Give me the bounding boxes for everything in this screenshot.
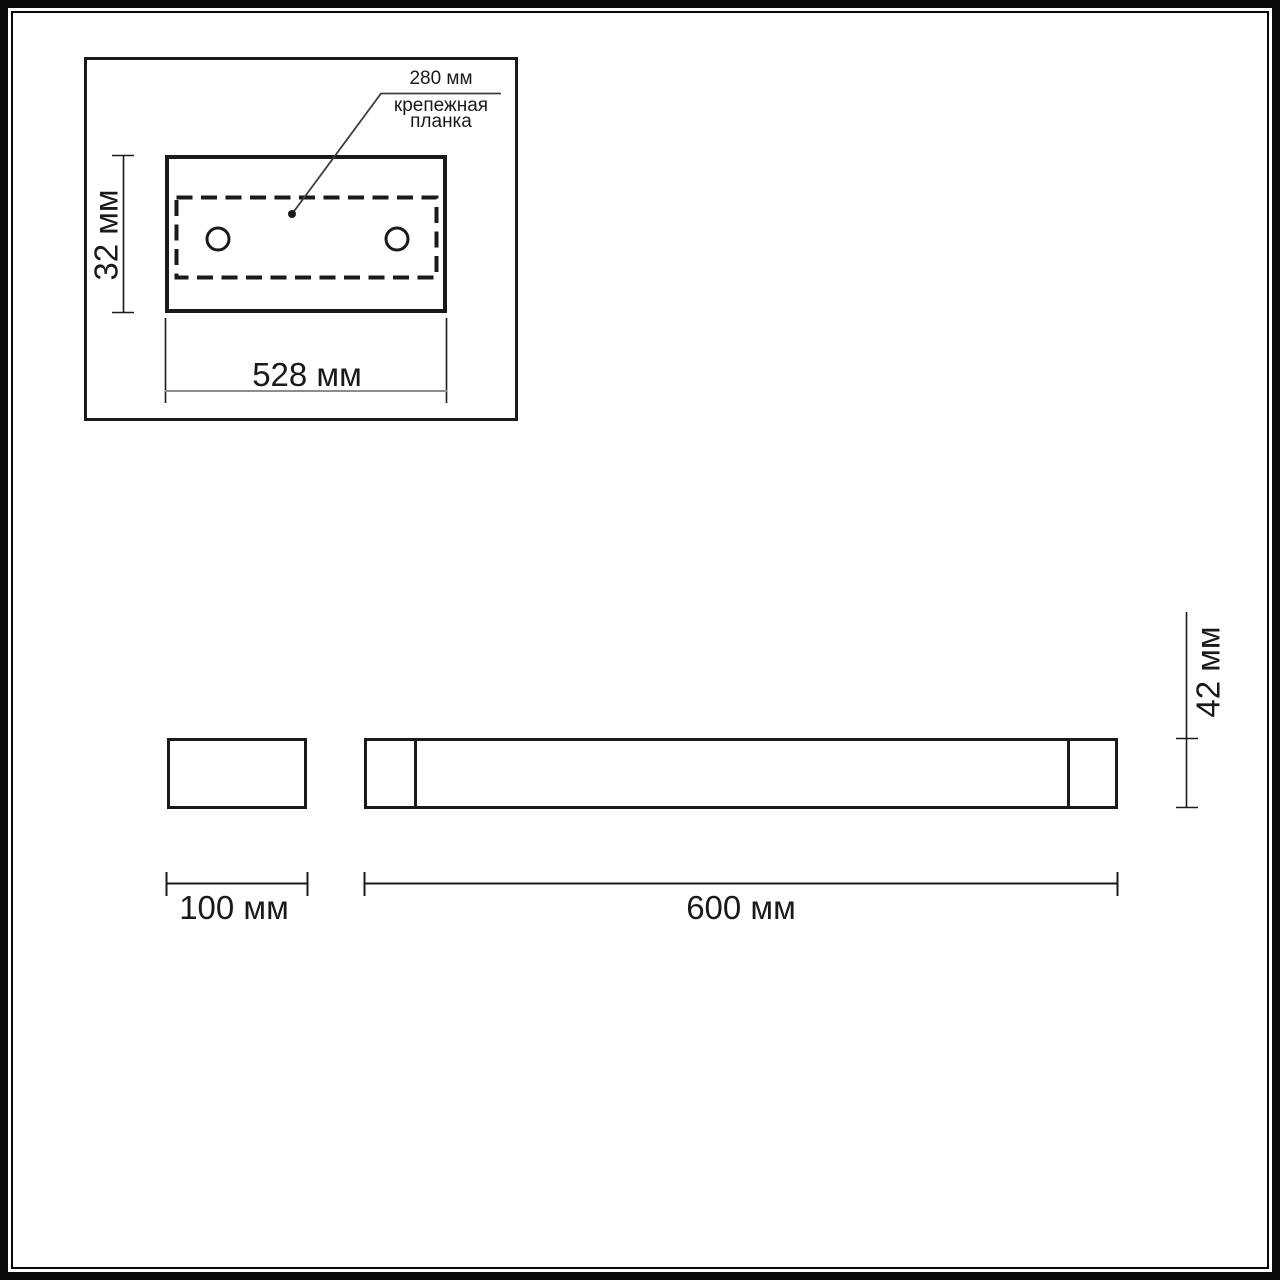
backplate-side-view [169,740,306,808]
body-width-dimension-label: 600 мм [686,891,796,924]
body-height-dimension-label: 42 мм [1192,626,1225,717]
technical-drawing [0,0,1280,1280]
backplate-width-dimension-label: 100 мм [179,891,289,924]
drawing-sheet: 280 мм крепежная планка 32 мм 528 мм 42 … [0,0,1280,1280]
mounting-bracket-label: крепежная планка [394,98,488,129]
hole-spacing-label: 280 мм [409,68,472,90]
lamp-body-side-view [366,740,1117,808]
screw-hole-right [386,228,408,250]
screw-hole-left [207,228,229,250]
leader-dot [288,210,296,218]
plate-width-dimension-label: 528 мм [252,358,362,391]
plate-height-dimension-label: 32 мм [90,189,123,280]
